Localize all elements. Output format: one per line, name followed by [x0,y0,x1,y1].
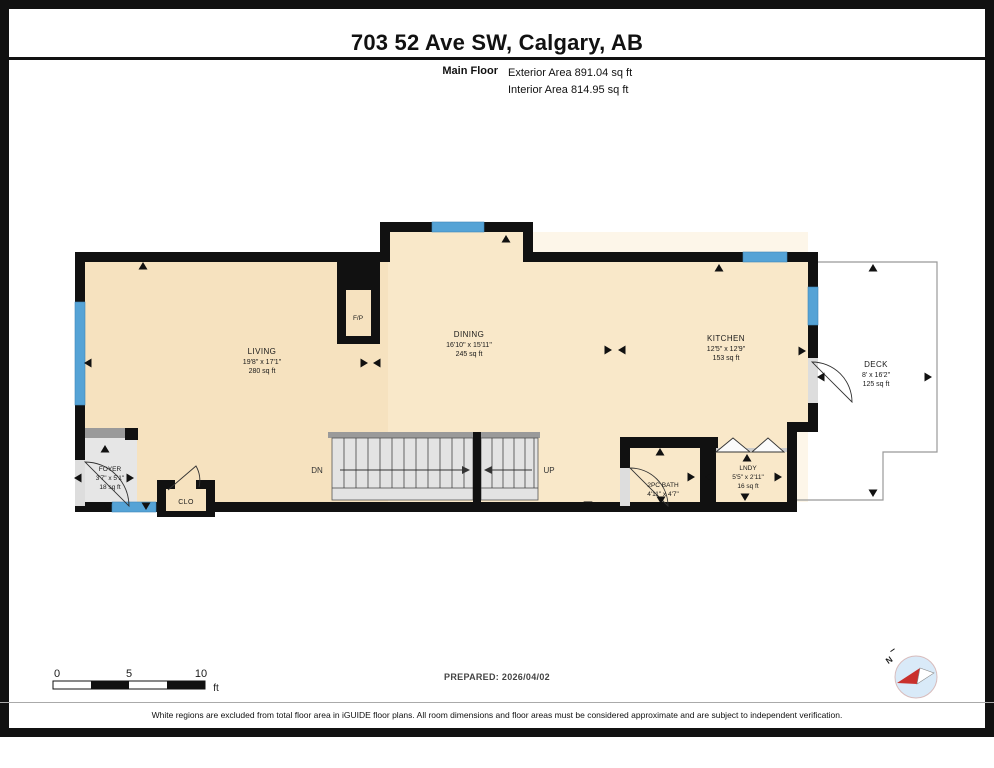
fireplace-bottom [337,336,380,344]
living-area: 280 sq ft [249,368,276,375]
window-dining-top [432,222,484,232]
kitchen-dims: 12'5" x 12'9" [707,346,746,353]
dimension-arrow-icon [869,264,878,272]
stair-divider-wall [473,432,481,502]
foyer-wall-stub [125,428,138,440]
deck-area: 125 sq ft [863,381,890,388]
stairs-up-label: UP [543,466,554,475]
fireplace-block [337,252,380,290]
laundry-name: LNDY [739,465,757,472]
fireplace-side-right [371,290,380,344]
dimension-arrow-icon [817,373,825,382]
scale-bar-seg1 [91,681,129,689]
scale-unit: ft [213,683,219,694]
scale-bar-seg2 [167,681,205,689]
laundry-dims: 5'5" x 2'11" [732,474,764,481]
kitchen-name: KITCHEN [707,334,745,343]
bath-door-opening [620,468,630,506]
dimension-arrow-icon [869,490,878,498]
foyer-step-edge [85,428,125,438]
wall-right-kitchen [808,252,818,432]
wall-laundry-right [787,422,797,512]
entry-door-opening [75,460,85,506]
fireplace-label: F/P [353,315,363,322]
foyer-area: 18 sq ft [99,484,121,491]
bath-dims: 4'11" x 4'7" [647,491,679,498]
living-dims: 19'8" x 17'1" [243,359,282,366]
prepared-date: PREPARED: 2026/04/02 [0,672,994,682]
kitchen-area: 153 sq ft [713,355,740,362]
foyer-name: FOYER [99,466,122,473]
compass-north-tick [890,649,894,652]
living-name: LIVING [248,347,277,356]
wall-bath-laundry-divider [700,437,716,512]
window-kitchen-top [743,252,787,262]
dimension-arrow-icon [925,373,933,382]
dining-dims: 16'10" x 15'11" [446,342,492,349]
compass-north-label: N [884,654,895,666]
foyer-dims: 3'7" x 5'1" [96,475,125,482]
footer-divider [0,702,994,703]
room-label-deck: DECK 8' x 16'2" 125 sq ft [862,360,891,388]
room-label-foyer: FOYER 3'7" x 5'1" 18 sq ft [96,466,125,491]
deck-door-opening [808,358,818,403]
compass-north-group: N [883,649,901,666]
laundry-area: 16 sq ft [737,483,759,490]
bath-name: 2PC BATH [647,482,679,489]
dining-area: 245 sq ft [456,351,483,358]
stairs-down-label: DN [311,466,323,475]
stair-rail [328,432,540,438]
closet-label: CLO [178,499,194,506]
deck-dims: 8' x 16'2" [862,372,891,379]
dining-name: DINING [454,330,484,339]
deck-name: DECK [864,360,888,369]
floor-plan-drawing: F/P CLO [0,0,994,768]
disclaimer-text: White regions are excluded from total fl… [0,710,994,720]
floor-plan-page: 703 52 Ave SW, Calgary, AB Main Floor Ex… [0,0,994,768]
fireplace-side-left [337,290,346,344]
window-living-left [75,302,85,405]
window-kitchen-right [808,287,818,325]
staircase [328,432,540,502]
